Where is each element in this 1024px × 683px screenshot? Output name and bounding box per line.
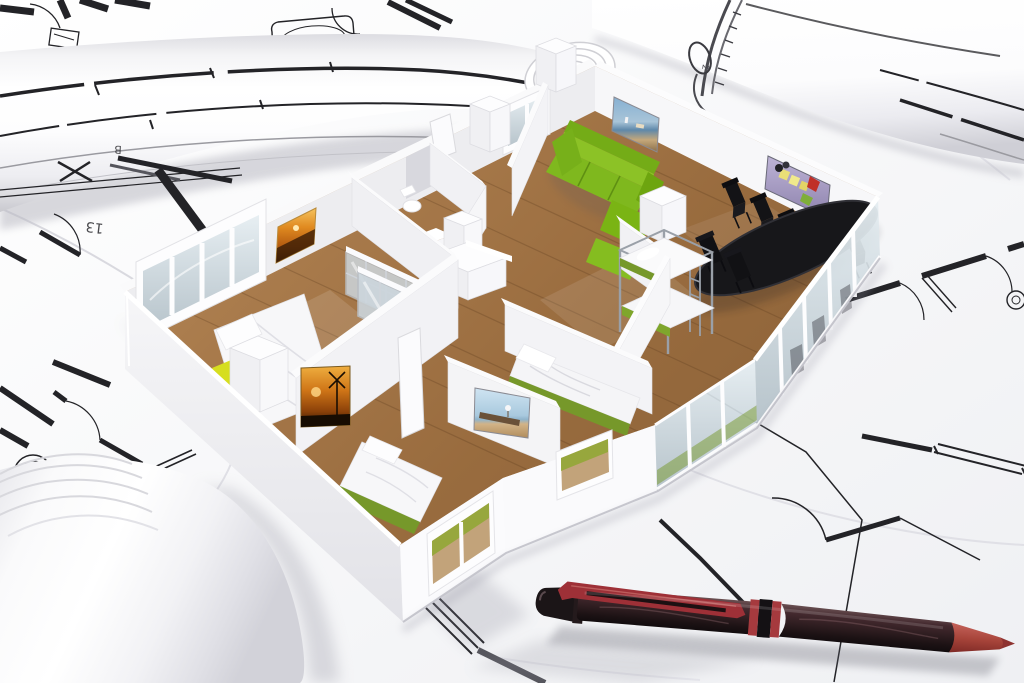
sheet-label-b: B (114, 143, 122, 156)
sheet-label-13: 13 (85, 218, 105, 236)
open-door-leaf (398, 328, 424, 438)
toilet (403, 200, 421, 212)
windmill-painting (301, 366, 350, 427)
scene-svg: 2 13 B (0, 0, 1024, 683)
render-canvas: 2 13 B (0, 0, 1024, 683)
